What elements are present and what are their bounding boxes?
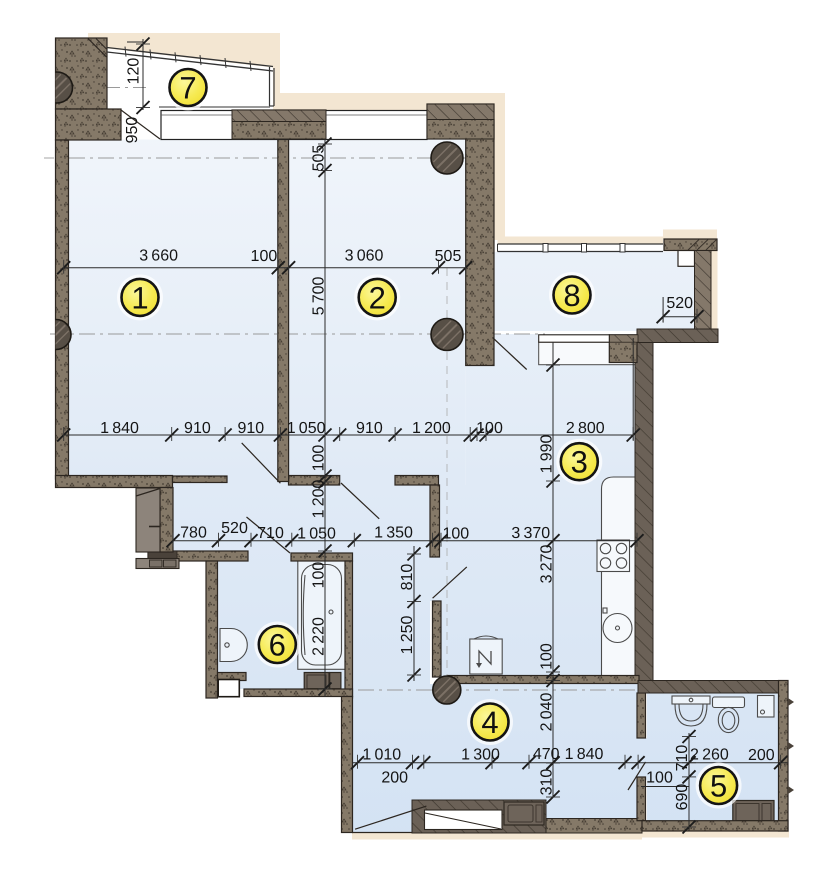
svg-text:100: 100 [476,420,503,437]
svg-text:2 800: 2 800 [566,420,605,437]
svg-text:1 990: 1 990 [539,435,556,474]
svg-text:5 700: 5 700 [311,277,328,316]
svg-text:7: 7 [179,71,196,106]
svg-text:100: 100 [539,643,556,670]
svg-text:520: 520 [221,520,248,537]
svg-text:810: 810 [399,564,416,591]
svg-text:710: 710 [674,745,691,772]
svg-text:690: 690 [674,784,691,811]
svg-text:120: 120 [126,58,143,85]
svg-text:1 300: 1 300 [461,747,500,764]
svg-text:520: 520 [666,295,693,312]
svg-text:3 660: 3 660 [139,248,178,265]
svg-text:2 040: 2 040 [539,693,556,732]
svg-text:2 260: 2 260 [690,747,729,764]
svg-text:470: 470 [533,746,560,763]
svg-text:1 840: 1 840 [565,746,604,763]
svg-text:950: 950 [124,117,141,144]
svg-text:3 370: 3 370 [511,525,550,542]
svg-text:780: 780 [180,525,207,542]
svg-text:6: 6 [269,628,286,663]
svg-text:1 200: 1 200 [412,420,451,437]
svg-text:505: 505 [435,248,462,265]
svg-text:200: 200 [381,770,408,787]
svg-text:1 250: 1 250 [399,616,416,655]
svg-text:1 050: 1 050 [297,526,336,543]
svg-text:910: 910 [356,420,383,437]
svg-text:100: 100 [646,770,673,787]
svg-text:2 220: 2 220 [311,617,328,656]
svg-text:2: 2 [369,280,386,315]
svg-text:3 060: 3 060 [345,248,384,265]
svg-text:1 350: 1 350 [374,525,413,542]
svg-text:3: 3 [571,445,588,480]
svg-text:1 010: 1 010 [362,747,401,764]
svg-text:505: 505 [311,145,328,172]
svg-text:1: 1 [131,280,148,315]
svg-text:1 840: 1 840 [100,420,139,437]
svg-text:910: 910 [184,420,211,437]
svg-text:8: 8 [563,278,580,313]
svg-text:100: 100 [311,562,328,589]
svg-text:910: 910 [237,420,264,437]
svg-text:100: 100 [311,445,328,472]
svg-text:5: 5 [710,769,727,804]
svg-text:100: 100 [251,248,278,265]
svg-text:710: 710 [257,525,284,542]
svg-text:1 200: 1 200 [311,480,328,519]
svg-text:3 270: 3 270 [539,545,556,584]
svg-text:200: 200 [748,747,775,764]
svg-text:4: 4 [481,705,498,740]
svg-text:310: 310 [539,769,556,796]
svg-text:100: 100 [442,526,469,543]
svg-text:1 050: 1 050 [287,420,326,437]
